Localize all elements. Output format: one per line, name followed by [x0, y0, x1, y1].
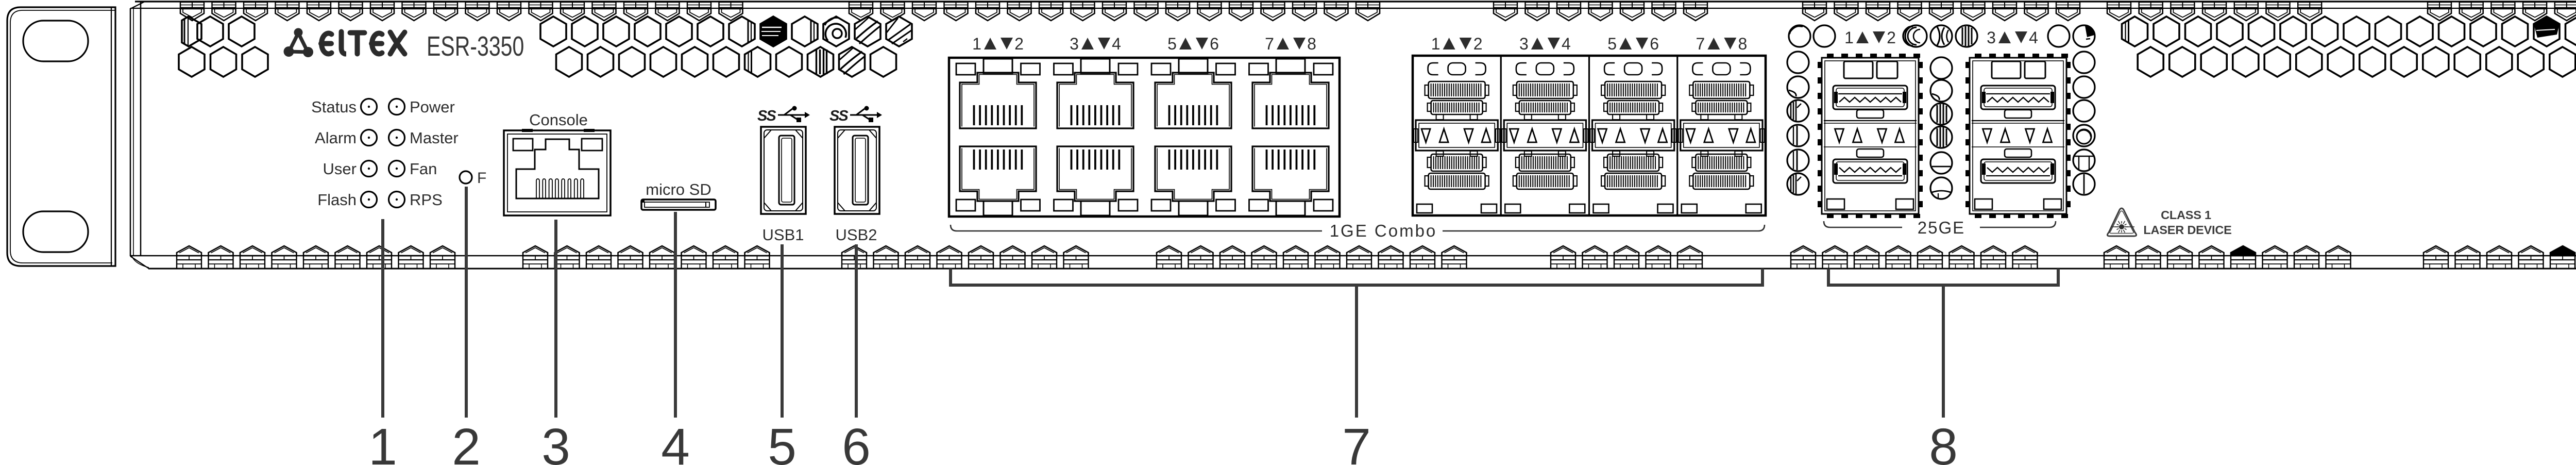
svg-text:2: 2 — [1887, 28, 1896, 47]
svg-text:3: 3 — [541, 418, 570, 465]
svg-text:7: 7 — [1265, 35, 1274, 53]
svg-text:6: 6 — [842, 418, 871, 465]
svg-text:Status: Status — [311, 98, 357, 116]
svg-text:1: 1 — [1844, 28, 1854, 47]
svg-text:2: 2 — [1473, 35, 1483, 53]
svg-text:7: 7 — [1696, 35, 1705, 53]
svg-text:SS: SS — [829, 108, 849, 124]
svg-text:3: 3 — [1519, 35, 1529, 53]
svg-text:User: User — [323, 160, 357, 178]
svg-text:2: 2 — [452, 418, 481, 465]
svg-text:7: 7 — [1342, 418, 1371, 465]
svg-text:3: 3 — [1070, 35, 1079, 53]
svg-text:4: 4 — [1562, 35, 1571, 53]
svg-text:8: 8 — [1738, 35, 1747, 53]
svg-text:5: 5 — [1607, 35, 1617, 53]
svg-text:RPS: RPS — [410, 191, 443, 209]
svg-text:5: 5 — [768, 418, 796, 465]
svg-text:6: 6 — [1650, 35, 1659, 53]
svg-text:Alarm: Alarm — [315, 129, 357, 147]
svg-text:Master: Master — [410, 129, 459, 147]
svg-text:5: 5 — [1167, 35, 1177, 53]
svg-text:micro SD: micro SD — [646, 180, 711, 198]
svg-text:3: 3 — [1987, 28, 1996, 47]
svg-text:1GE Combo: 1GE Combo — [1330, 221, 1437, 240]
svg-text:Console: Console — [529, 111, 588, 129]
svg-text:1: 1 — [1431, 35, 1440, 53]
svg-text:CLASS 1: CLASS 1 — [2161, 208, 2211, 222]
svg-text:4: 4 — [2029, 28, 2038, 47]
svg-text:SS: SS — [757, 108, 776, 124]
svg-text:4: 4 — [661, 418, 690, 465]
svg-text:2: 2 — [1014, 35, 1024, 53]
svg-text:1: 1 — [972, 35, 981, 53]
svg-text:4: 4 — [1112, 35, 1121, 53]
svg-text:F: F — [477, 170, 486, 187]
svg-text:1: 1 — [368, 418, 397, 465]
svg-text:25GE: 25GE — [1918, 218, 1965, 237]
svg-text:USB2: USB2 — [836, 226, 877, 244]
svg-text:USB1: USB1 — [762, 226, 804, 244]
svg-text:8: 8 — [1307, 35, 1316, 53]
svg-text:Power: Power — [410, 98, 455, 116]
svg-text:ESR-3350: ESR-3350 — [427, 31, 524, 62]
svg-text:6: 6 — [1210, 35, 1219, 53]
svg-text:LASER DEVICE: LASER DEVICE — [2143, 223, 2231, 237]
svg-text:Fan: Fan — [410, 160, 437, 178]
svg-text:Flash: Flash — [317, 191, 357, 209]
svg-text:8: 8 — [1929, 418, 1958, 465]
